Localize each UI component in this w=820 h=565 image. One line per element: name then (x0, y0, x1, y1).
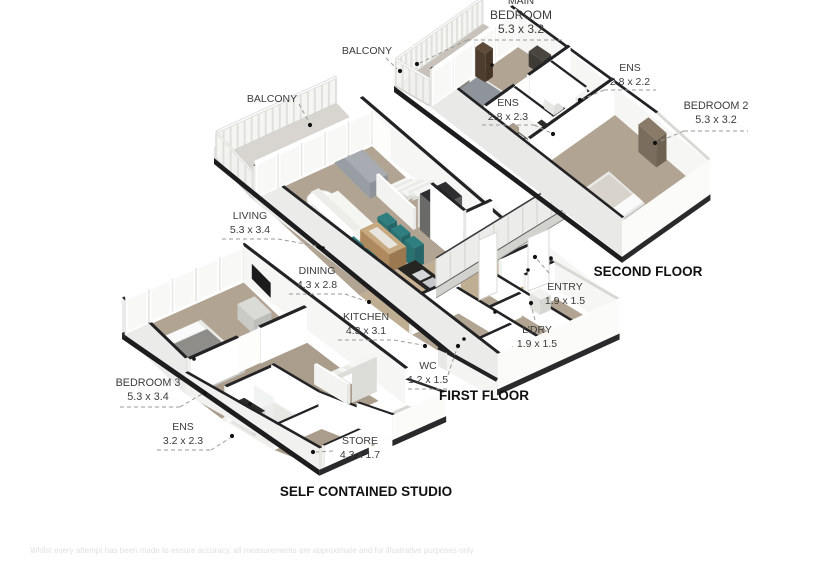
svg-text:5.3 x 3.2: 5.3 x 3.2 (498, 22, 544, 36)
svg-text:SECOND FLOOR: SECOND FLOOR (594, 264, 703, 279)
svg-text:4.3 x 3.1: 4.3 x 3.1 (346, 325, 386, 337)
svg-text:2.8 x 2.3: 2.8 x 2.3 (488, 111, 528, 123)
svg-text:1.9 x 1.5: 1.9 x 1.5 (517, 338, 557, 350)
svg-text:5.3 x 3.4: 5.3 x 3.4 (127, 391, 168, 403)
svg-text:SELF CONTAINED STUDIO: SELF CONTAINED STUDIO (280, 484, 452, 499)
svg-text:BALCONY: BALCONY (247, 93, 297, 105)
svg-text:3.2 x 2.3: 3.2 x 2.3 (163, 435, 203, 447)
svg-text:BALCONY: BALCONY (342, 45, 392, 57)
svg-text:1.2 x 1.5: 1.2 x 1.5 (408, 374, 448, 386)
svg-text:WC: WC (419, 360, 437, 372)
svg-text:ENS: ENS (619, 62, 641, 74)
svg-text:4.3 x 1.7: 4.3 x 1.7 (340, 449, 380, 461)
svg-text:MAIN: MAIN (508, 0, 534, 7)
svg-text:KITCHEN: KITCHEN (343, 311, 389, 323)
svg-text:ENS: ENS (172, 421, 194, 433)
svg-text:Whilst every attempt has been: Whilst every attempt has been made to en… (30, 546, 474, 555)
svg-text:ENS: ENS (497, 97, 519, 109)
svg-text:L'DRY: L'DRY (522, 324, 552, 336)
svg-text:FIRST FLOOR: FIRST FLOOR (439, 388, 529, 403)
svg-text:BEDROOM: BEDROOM (490, 8, 552, 22)
svg-text:5.3 x 3.2: 5.3 x 3.2 (695, 114, 736, 126)
svg-text:STORE: STORE (342, 435, 378, 447)
svg-text:LIVING: LIVING (233, 210, 267, 222)
svg-text:4.3 x 2.8: 4.3 x 2.8 (297, 279, 337, 291)
svg-text:1.9 x 1.5: 1.9 x 1.5 (545, 295, 585, 307)
svg-text:DINING: DINING (299, 265, 336, 277)
svg-text:BEDROOM 3: BEDROOM 3 (116, 377, 181, 389)
svg-text:2.8 x 2.2: 2.8 x 2.2 (610, 76, 650, 88)
svg-text:BEDROOM 2: BEDROOM 2 (684, 100, 749, 112)
svg-text:ENTRY: ENTRY (547, 281, 582, 293)
svg-text:5.3 x 3.4: 5.3 x 3.4 (230, 224, 270, 236)
